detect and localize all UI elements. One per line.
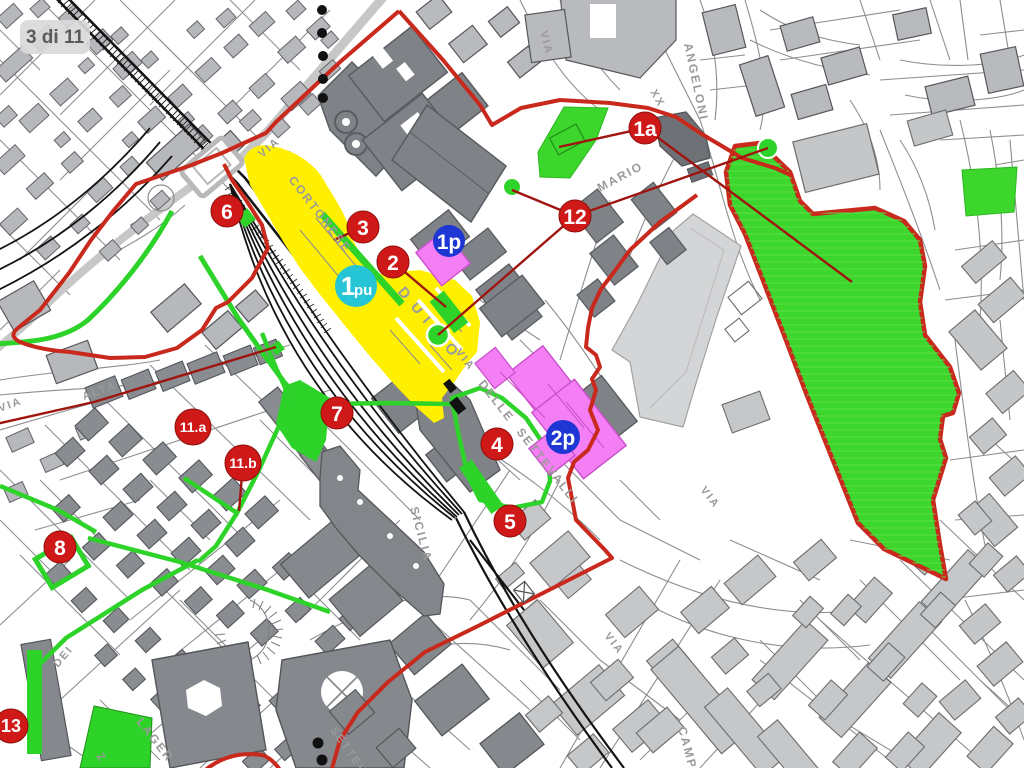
- svg-text:8: 8: [54, 537, 66, 560]
- svg-text:1p: 1p: [437, 231, 462, 254]
- svg-text:2: 2: [387, 252, 399, 275]
- svg-text:3: 3: [357, 217, 369, 240]
- svg-text:5: 5: [504, 511, 516, 534]
- svg-text:1a: 1a: [633, 118, 657, 141]
- svg-text:2p: 2p: [551, 427, 576, 450]
- svg-text:11.b: 11.b: [229, 455, 256, 471]
- svg-text:pu: pu: [354, 282, 372, 299]
- svg-text:4: 4: [491, 434, 503, 457]
- svg-text:12: 12: [563, 206, 586, 229]
- svg-text:3 di 11: 3 di 11: [26, 27, 85, 48]
- svg-text:6: 6: [221, 201, 233, 224]
- svg-text:7: 7: [331, 403, 343, 426]
- svg-text:13: 13: [1, 716, 21, 736]
- svg-text:11.a: 11.a: [180, 419, 207, 435]
